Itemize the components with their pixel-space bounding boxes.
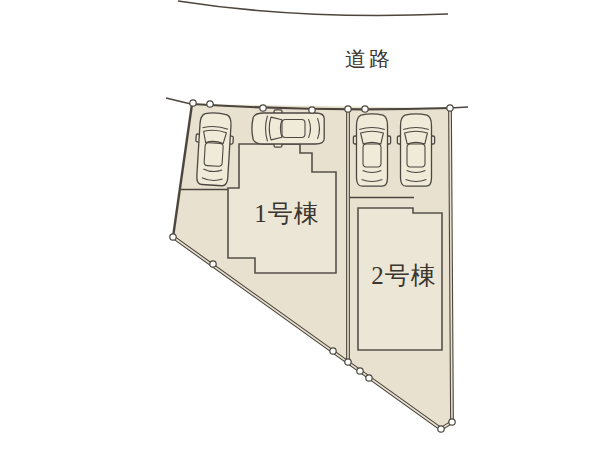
boundary-marker — [330, 348, 336, 354]
boundary-marker — [207, 101, 213, 107]
boundary-marker — [438, 426, 444, 432]
boundary-marker — [170, 234, 176, 240]
boundary-marker — [362, 106, 368, 112]
road-label: 道路 — [345, 47, 393, 71]
boundary-marker — [309, 107, 315, 113]
car-icon — [397, 114, 434, 186]
boundary-marker — [449, 419, 455, 425]
boundary-marker — [447, 105, 453, 111]
boundary-marker — [345, 359, 351, 365]
boundary-marker — [345, 106, 351, 112]
boundary-stub-northwest — [166, 98, 193, 105]
site-plan-canvas: 道路 — [0, 0, 600, 450]
site-plan-svg: 道路 — [0, 0, 600, 450]
building-2-label: 2号棟 — [371, 262, 437, 289]
car-icon — [353, 114, 390, 186]
building-1-label: 1号棟 — [254, 200, 320, 227]
boundary-marker — [190, 100, 196, 106]
boundary-marker — [366, 375, 372, 381]
road-edge-line — [178, 1, 448, 15]
boundary-marker — [210, 261, 216, 267]
car-icon — [252, 110, 324, 147]
boundary-marker — [260, 105, 266, 111]
car-icon — [193, 112, 235, 186]
boundary-marker — [357, 368, 363, 374]
